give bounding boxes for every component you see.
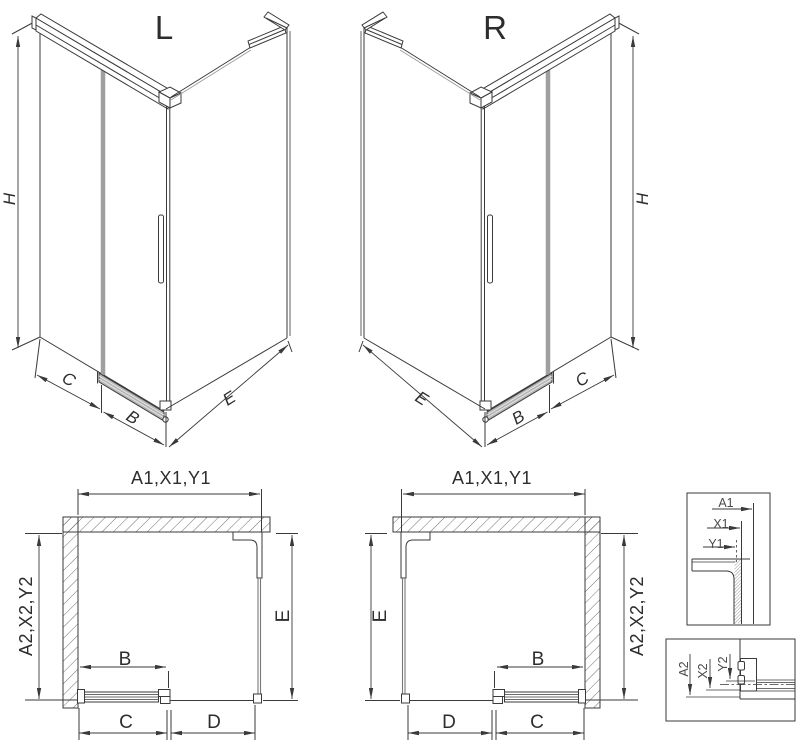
iso-right-height-label: H xyxy=(632,187,652,211)
plan-right-c-label: C xyxy=(527,712,547,732)
plan-right-d-label: D xyxy=(439,712,459,732)
detail-bottom-a2-label: A2 xyxy=(677,657,691,681)
plan-right-depth-label: A2,X2,Y2 xyxy=(628,561,646,671)
plan-right-width-label: A1,X1,Y1 xyxy=(447,469,537,487)
plan-right-side-label: E xyxy=(370,606,390,626)
diagram-canvas xyxy=(0,0,800,752)
iso-left-title: L xyxy=(148,10,180,44)
plan-left-side-label: E xyxy=(273,606,293,626)
detail-top-a1-label: A1 xyxy=(714,496,738,510)
plan-right-door-label: B xyxy=(528,649,548,669)
iso-left-height-label: H xyxy=(0,187,19,211)
plan-left-d-label: D xyxy=(204,712,224,732)
detail-bottom-y2-label: Y2 xyxy=(716,652,730,676)
detail-box-top xyxy=(687,493,770,625)
plan-left-c-label: C xyxy=(116,712,136,732)
detail-top-y1-label: Y1 xyxy=(704,537,728,551)
wall-hatching xyxy=(63,517,600,708)
plan-left-door-label: B xyxy=(115,649,135,669)
plan-left-width-label: A1,X1,Y1 xyxy=(126,469,216,487)
iso-right-title: R xyxy=(479,10,511,44)
plan-left-depth-label: A2,X2,Y2 xyxy=(17,561,35,671)
detail-bottom-x2-label: X2 xyxy=(696,659,710,683)
detail-top-x1-label: X1 xyxy=(709,517,733,531)
technical-drawing-page: L H C B E R H E B C A1,X1,Y1 A2,X2,Y2 E … xyxy=(0,0,800,752)
